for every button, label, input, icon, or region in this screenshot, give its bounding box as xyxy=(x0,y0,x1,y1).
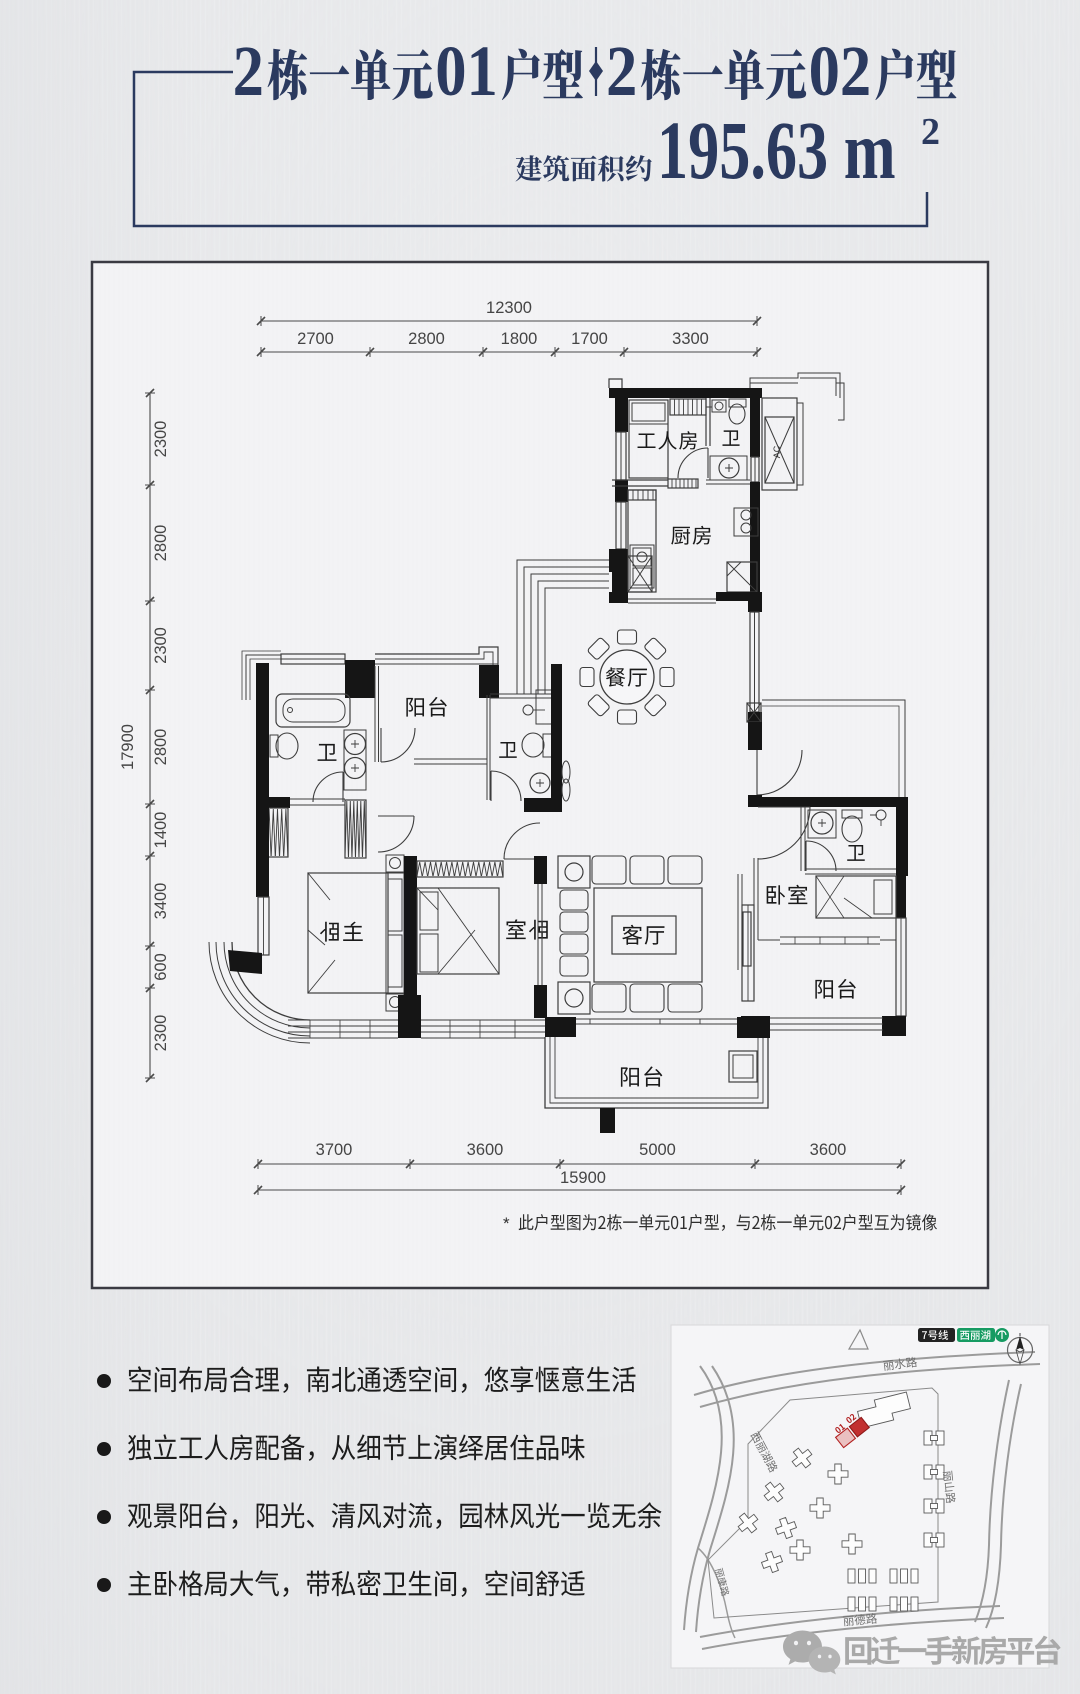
svg-text:3600: 3600 xyxy=(810,1141,847,1159)
svg-text:1800: 1800 xyxy=(501,330,538,348)
svg-text:*: * xyxy=(503,1214,510,1233)
svg-text:3700: 3700 xyxy=(316,1141,353,1159)
svg-text:2700: 2700 xyxy=(297,330,334,348)
svg-text:12300: 12300 xyxy=(486,299,532,317)
svg-text:AC: AC xyxy=(772,445,782,458)
svg-text:2300: 2300 xyxy=(152,1015,170,1052)
svg-text:2800: 2800 xyxy=(408,330,445,348)
svg-text:2800: 2800 xyxy=(152,729,170,766)
svg-text:01: 01 xyxy=(435,31,498,111)
svg-text:15900: 15900 xyxy=(560,1169,606,1187)
svg-text:2800: 2800 xyxy=(152,525,170,562)
svg-text:2300: 2300 xyxy=(152,627,170,664)
svg-text:600: 600 xyxy=(152,953,170,981)
svg-text:2300: 2300 xyxy=(152,421,170,458)
svg-text:3600: 3600 xyxy=(467,1141,504,1159)
svg-text:3400: 3400 xyxy=(152,883,170,920)
svg-text:2: 2 xyxy=(233,31,264,111)
svg-text:5000: 5000 xyxy=(639,1141,676,1159)
svg-text:1700: 1700 xyxy=(571,330,608,348)
svg-text:3300: 3300 xyxy=(672,330,709,348)
svg-text:195.63 m: 195.63 m xyxy=(657,104,896,196)
svg-text:2: 2 xyxy=(921,111,940,153)
svg-text:2: 2 xyxy=(606,31,637,111)
svg-text:17900: 17900 xyxy=(119,724,137,770)
svg-text:02: 02 xyxy=(809,31,872,111)
svg-text:1400: 1400 xyxy=(152,812,170,849)
